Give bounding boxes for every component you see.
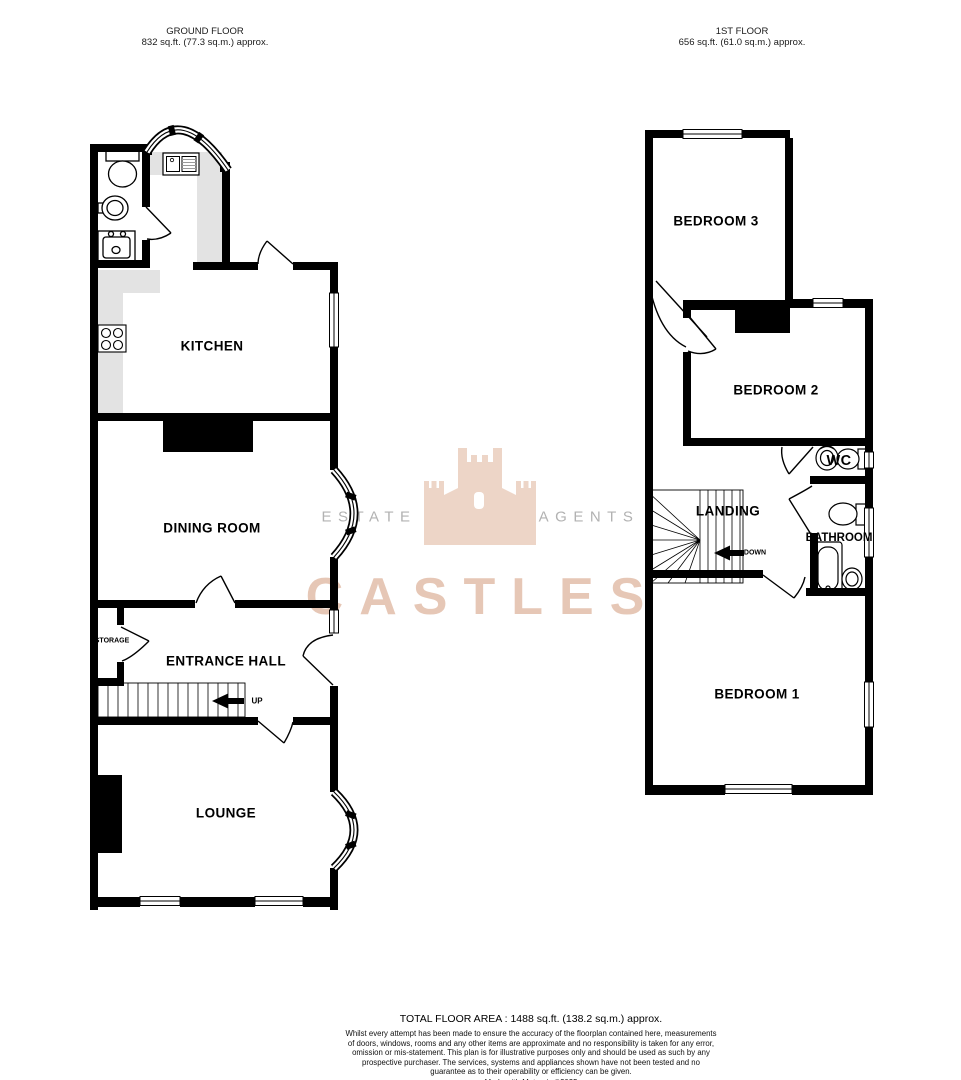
footer: TOTAL FLOOR AREA : 1488 sq.ft. (138.2 sq…: [201, 1013, 861, 1080]
bedroom3-label: BEDROOM 3: [673, 214, 758, 229]
landing-label: LANDING: [696, 504, 760, 519]
floorplan-page: GROUND FLOOR 832 sq.ft. (77.3 sq.m.) app…: [0, 0, 961, 1080]
lounge-bay-window: [334, 792, 356, 868]
kitchen-sink-icon: [163, 153, 199, 175]
ground-floor-area: 832 sq.ft. (77.3 sq.m.) approx.: [55, 37, 355, 48]
ground-floor-plan: [90, 126, 356, 910]
bathroom-basin-icon: [842, 568, 862, 590]
first-floor-title: 1ST FLOOR: [592, 26, 892, 37]
total-floor-area: TOTAL FLOOR AREA : 1488 sq.ft. (138.2 sq…: [201, 1013, 861, 1026]
butler-sink-icon: [98, 231, 135, 262]
bathroom-toilet-icon: [829, 503, 866, 525]
castle-logo-icon: [424, 448, 536, 545]
up-label: UP: [251, 697, 262, 706]
hob-icon: [98, 325, 126, 352]
kitchen-counter: [98, 152, 222, 420]
first-floor-header: 1ST FLOOR 656 sq.ft. (61.0 sq.m.) approx…: [592, 26, 892, 48]
kitchen-label: KITCHEN: [181, 339, 244, 354]
wc-window: [865, 452, 874, 468]
dining-room-label: DINING ROOM: [163, 521, 260, 536]
lounge-label: LOUNGE: [196, 806, 256, 821]
bedroom2-label: BEDROOM 2: [733, 383, 818, 398]
bath-icon: [814, 542, 842, 594]
bedroom1-label: BEDROOM 1: [714, 687, 799, 702]
ground-floor-title: GROUND FLOOR: [55, 26, 355, 37]
dining-bay-window: [334, 470, 356, 557]
disclaimer-text: Whilst every attempt has been made to en…: [345, 1029, 717, 1077]
bedroom2-window: [813, 299, 843, 308]
bedroom1-bottom-window: [725, 785, 792, 794]
bedroom3-window: [683, 130, 742, 139]
basin-icon: [98, 196, 128, 220]
kitchen-window: [330, 293, 339, 347]
down-label: DOWN: [744, 550, 766, 557]
wc-label: WC: [827, 453, 852, 469]
bathroom-label: BATHROOM: [806, 532, 873, 544]
hall-window: [330, 610, 339, 633]
first-floor-area: 656 sq.ft. (61.0 sq.m.) approx.: [592, 37, 892, 48]
toilet-icon: [106, 151, 139, 187]
bedroom1-side-window: [865, 682, 874, 727]
ground-floor-header: GROUND FLOOR 832 sq.ft. (77.3 sq.m.) app…: [55, 26, 355, 48]
lounge-window-left: [140, 897, 180, 906]
entrance-hall-label: ENTRANCE HALL: [166, 654, 286, 669]
lounge-window-right: [255, 897, 303, 906]
